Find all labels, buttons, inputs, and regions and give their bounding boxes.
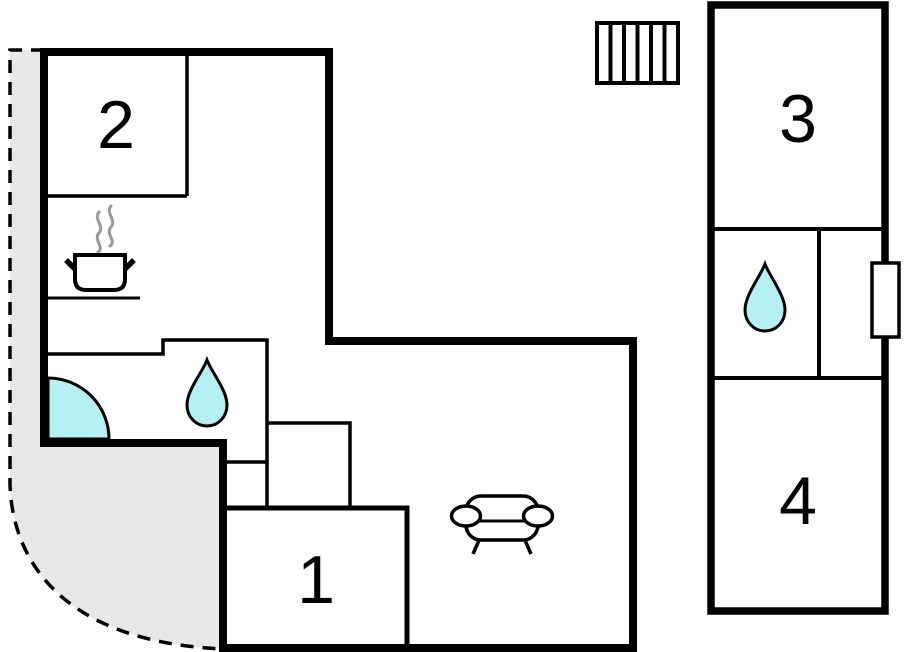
floor-plan: 2 1 3 4	[0, 0, 909, 652]
stairs-icon	[597, 23, 678, 83]
room-3-label: 3	[779, 81, 817, 157]
stove-pot-icon	[66, 255, 134, 290]
floor-plan-canvas: 2 1 3 4	[0, 0, 909, 652]
room-4-label: 4	[779, 463, 817, 539]
window-icon	[872, 263, 899, 337]
room-1-label: 1	[297, 542, 335, 618]
room-2-label: 2	[97, 87, 135, 163]
